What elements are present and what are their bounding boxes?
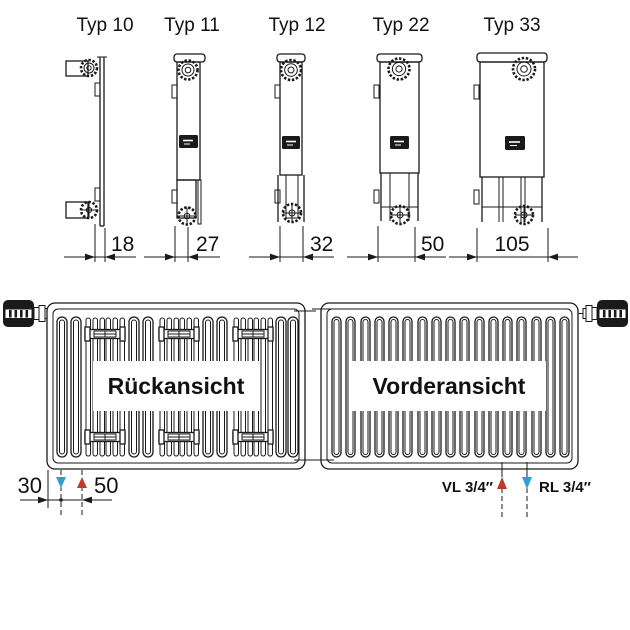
typ-12-label: Typ 12 <box>268 15 325 36</box>
brand-plate-icon <box>390 136 409 149</box>
brand-plate-icon <box>505 136 525 150</box>
typ-11-depth-value: 27 <box>196 233 219 256</box>
rear-view-label: Rückansicht <box>108 373 245 399</box>
radiator-type-diagram: Typ 10 18 Typ 11 <box>0 0 630 630</box>
rear-view-radiator: Rückansicht <box>3 300 316 469</box>
wall-offset-value: 30 <box>18 473 42 498</box>
supply-connection-label: VL 3/4″ <box>442 479 493 496</box>
diagram-canvas: Typ 10 18 Typ 11 <box>0 0 630 630</box>
typ-10-label: Typ 10 <box>76 15 133 36</box>
typ-11-label: Typ 11 <box>164 15 220 36</box>
typ-22-depth-value: 50 <box>421 233 444 256</box>
connection-spacing-value: 50 <box>94 473 118 498</box>
front-view-label: Vorderansicht <box>373 373 526 399</box>
brand-plate-icon <box>179 135 198 148</box>
return-connection-label: RL 3/4″ <box>539 479 591 496</box>
typ-22-label: Typ 22 <box>372 15 429 36</box>
typ-33-label: Typ 33 <box>483 15 540 36</box>
typ-12-depth-value: 32 <box>310 233 333 256</box>
typ-10-depth-value: 18 <box>111 233 134 256</box>
typ-33-depth-value: 105 <box>494 233 529 256</box>
brand-plate-icon <box>282 136 300 149</box>
